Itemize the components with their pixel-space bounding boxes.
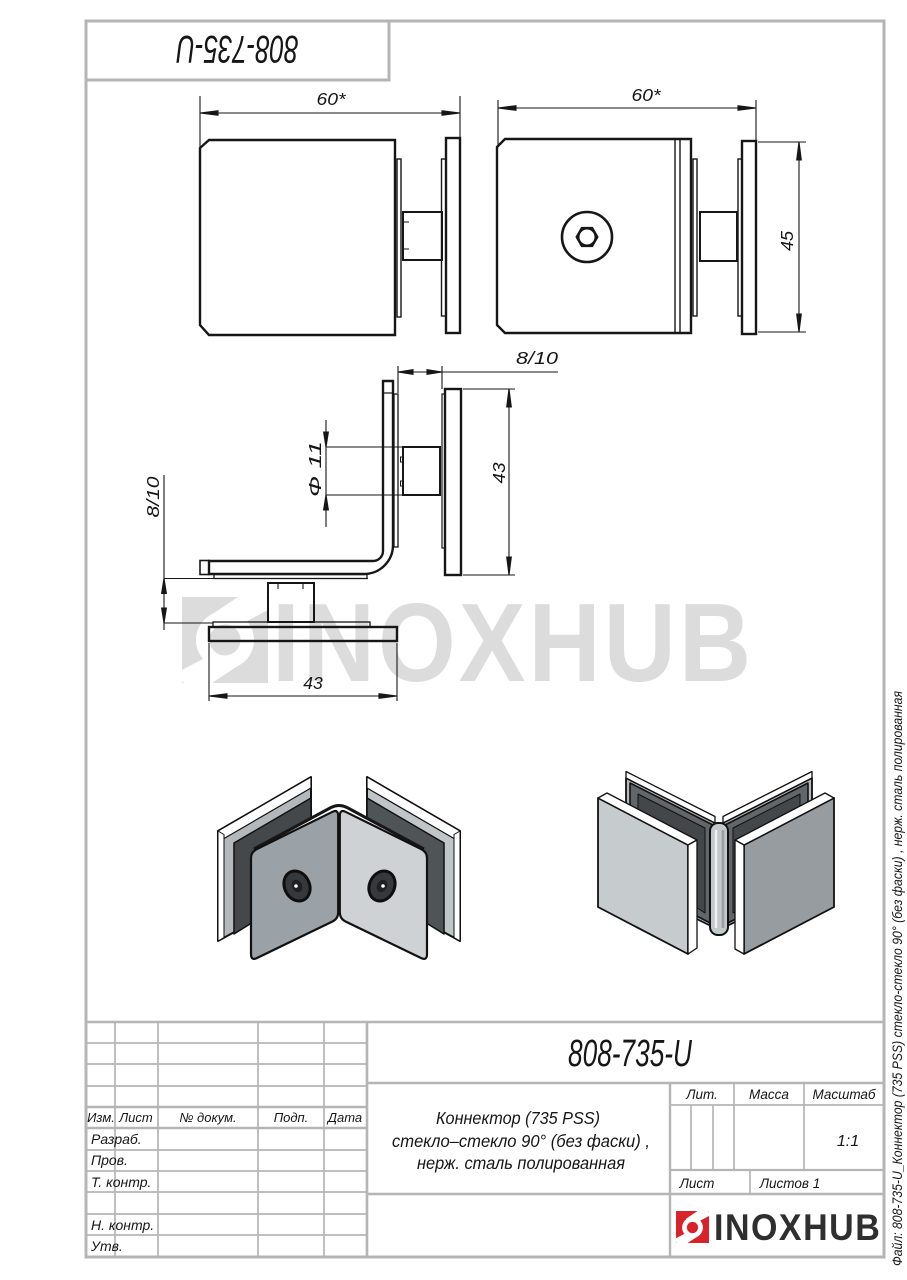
svg-text:45: 45 bbox=[777, 231, 797, 251]
svg-text:Ф 11: Ф 11 bbox=[305, 441, 325, 497]
svg-text:Пров.: Пров. bbox=[91, 1152, 128, 1168]
svg-text:Лит.: Лит. bbox=[685, 1087, 718, 1102]
svg-text:INOXHUB: INOXHUB bbox=[272, 581, 754, 705]
svg-text:808-735-U: 808-735-U bbox=[176, 27, 299, 70]
svg-text:60*: 60* bbox=[317, 89, 347, 109]
svg-text:1:1: 1:1 bbox=[837, 1133, 859, 1150]
svg-text:Подп.: Подп. bbox=[274, 1110, 309, 1125]
svg-text:№ докум.: № докум. bbox=[179, 1110, 236, 1125]
svg-text:Масса: Масса bbox=[749, 1087, 789, 1102]
svg-text:Разраб.: Разраб. bbox=[91, 1131, 142, 1147]
svg-text:8/10: 8/10 bbox=[143, 476, 163, 517]
svg-text:60*: 60* bbox=[632, 85, 662, 105]
svg-text:Лист: Лист bbox=[118, 1110, 153, 1125]
svg-text:Листов 1: Листов 1 bbox=[759, 1176, 820, 1191]
svg-text:43: 43 bbox=[303, 673, 323, 693]
svg-text:Утв.: Утв. bbox=[90, 1238, 123, 1254]
svg-text:Т. контр.: Т. контр. bbox=[91, 1174, 151, 1190]
svg-text:Файл: 808-735-U_Коннектор (735: Файл: 808-735-U_Коннектор (735 PSS) стек… bbox=[890, 691, 905, 1266]
svg-text:43: 43 bbox=[489, 462, 509, 483]
svg-text:стекло–стекло 90° (без фаски): стекло–стекло 90° (без фаски) , bbox=[392, 1131, 650, 1151]
svg-text:Коннектор (735 PSS): Коннектор (735 PSS) bbox=[436, 1108, 600, 1128]
svg-text:Изм.: Изм. bbox=[87, 1110, 115, 1125]
svg-text:Н. контр.: Н. контр. bbox=[91, 1217, 154, 1233]
svg-text:808-735-U: 808-735-U bbox=[568, 1033, 692, 1075]
svg-text:Дата: Дата bbox=[326, 1110, 362, 1125]
svg-text:Масштаб: Масштаб bbox=[812, 1087, 875, 1102]
svg-text:Лист: Лист bbox=[679, 1176, 715, 1191]
svg-text:нерж. сталь полированная: нерж. сталь полированная bbox=[417, 1153, 625, 1173]
svg-text:8/10: 8/10 bbox=[516, 348, 558, 368]
svg-text:INOXHUB: INOXHUB bbox=[714, 1207, 881, 1249]
